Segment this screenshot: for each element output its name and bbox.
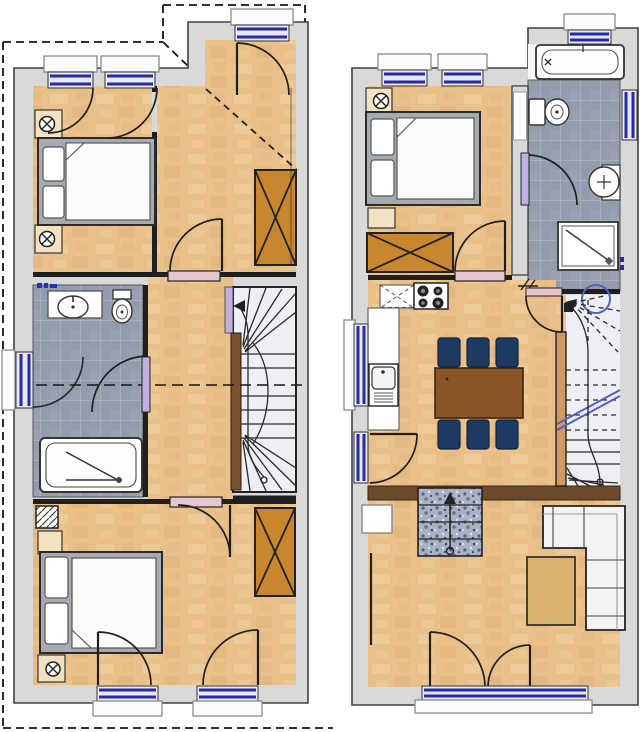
stairs-upper xyxy=(225,287,296,492)
chimney-hatched xyxy=(36,506,58,528)
upper-floor-plan xyxy=(2,5,333,728)
stairwell-floor xyxy=(566,295,620,486)
dining-table xyxy=(435,368,523,418)
double-bed xyxy=(38,138,155,225)
door-threshold xyxy=(455,271,505,281)
toilet xyxy=(529,99,569,125)
entrance-door-band xyxy=(354,432,368,483)
chair xyxy=(467,420,489,449)
level-change-wall xyxy=(368,486,620,500)
toilet xyxy=(112,290,132,323)
door-threshold xyxy=(142,357,150,412)
radiator-icon xyxy=(46,662,60,676)
coffee-table xyxy=(527,557,575,625)
stair-entry-threshold xyxy=(225,287,233,333)
wardrobe xyxy=(255,170,296,265)
door-threshold xyxy=(170,497,222,507)
door-threshold xyxy=(521,153,529,205)
chair xyxy=(438,338,460,367)
chair xyxy=(438,420,460,449)
door-threshold xyxy=(526,288,562,296)
radiator-icon xyxy=(40,117,55,132)
washbasin xyxy=(48,291,102,318)
bathtub xyxy=(536,45,624,79)
main-floor-plan xyxy=(344,14,638,713)
stove xyxy=(414,283,448,309)
radiator-icon xyxy=(40,232,55,247)
kitchen-sink xyxy=(369,364,398,406)
hallway-floor xyxy=(148,277,233,499)
double-bed xyxy=(40,552,162,653)
shower xyxy=(558,222,618,270)
wardrobe xyxy=(255,508,295,596)
chair xyxy=(496,338,518,367)
nightstand xyxy=(368,208,395,228)
wall-niche xyxy=(362,505,392,533)
radiator-icon xyxy=(374,94,389,109)
chair xyxy=(467,338,489,367)
stair-handrail xyxy=(556,332,566,486)
bathtub xyxy=(40,438,142,492)
dining-set xyxy=(435,338,523,449)
door-threshold xyxy=(168,271,220,281)
chair xyxy=(496,420,518,449)
double-bed xyxy=(366,112,480,205)
stone-steps xyxy=(418,488,482,556)
floor-plan-sheet xyxy=(0,0,640,732)
nightstand xyxy=(38,531,62,554)
stair-handrail xyxy=(231,333,241,490)
wardrobe xyxy=(367,233,453,272)
duct-shaft xyxy=(514,92,527,140)
upper-cabinets xyxy=(380,285,414,308)
